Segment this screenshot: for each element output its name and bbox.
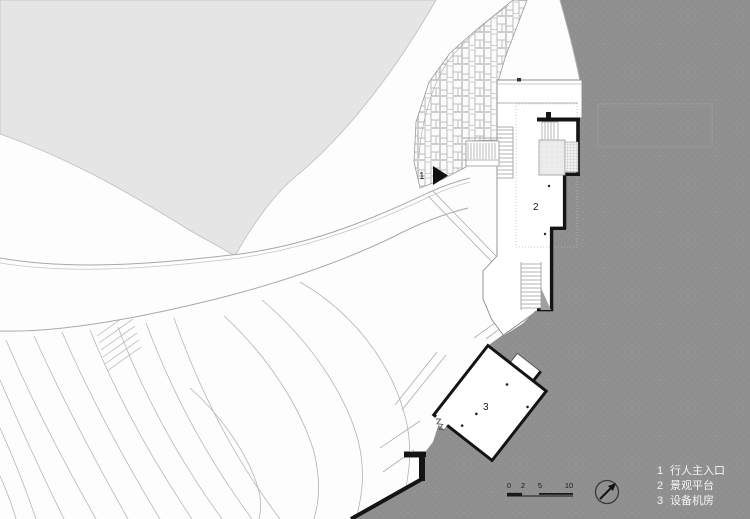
site-plan-canvas: 1 2 3 0 2 5 10 1 行人主入口 2 景观平台 3 设备机房 bbox=[0, 0, 750, 519]
legend-item-1-label: 行人主入口 bbox=[670, 464, 725, 477]
equipment-marker-label: 3 bbox=[483, 402, 489, 413]
entrance-marker-label: 1 bbox=[419, 171, 425, 182]
scale-block-b bbox=[539, 493, 573, 495]
legend-item-3-label: 设备机房 bbox=[670, 493, 714, 507]
platform-top-tick bbox=[517, 78, 521, 82]
hatch-block bbox=[565, 142, 578, 172]
legend-item-2-number: 2 bbox=[657, 480, 663, 492]
legend-item-1-number: 1 bbox=[657, 465, 663, 477]
platform-door-mark bbox=[546, 112, 551, 119]
scale-block-a bbox=[507, 493, 522, 496]
entrance-stairs bbox=[463, 138, 502, 166]
scale-tick-0: 0 bbox=[507, 481, 511, 490]
scale-tick-10: 10 bbox=[565, 481, 573, 490]
legend-item-2-label: 景观平台 bbox=[670, 478, 714, 492]
scale-tick-2: 2 bbox=[521, 481, 525, 490]
platform-marker-label: 2 bbox=[533, 202, 539, 213]
site-plan-drawing: 1 2 3 0 2 5 10 1 行人主入口 2 景观平台 3 设备机房 bbox=[0, 0, 750, 519]
column-dot bbox=[544, 233, 546, 235]
legend-item-3-number: 3 bbox=[657, 495, 663, 507]
skylight bbox=[539, 140, 565, 175]
scale-tick-5: 5 bbox=[538, 481, 542, 490]
column-dot bbox=[548, 185, 550, 187]
